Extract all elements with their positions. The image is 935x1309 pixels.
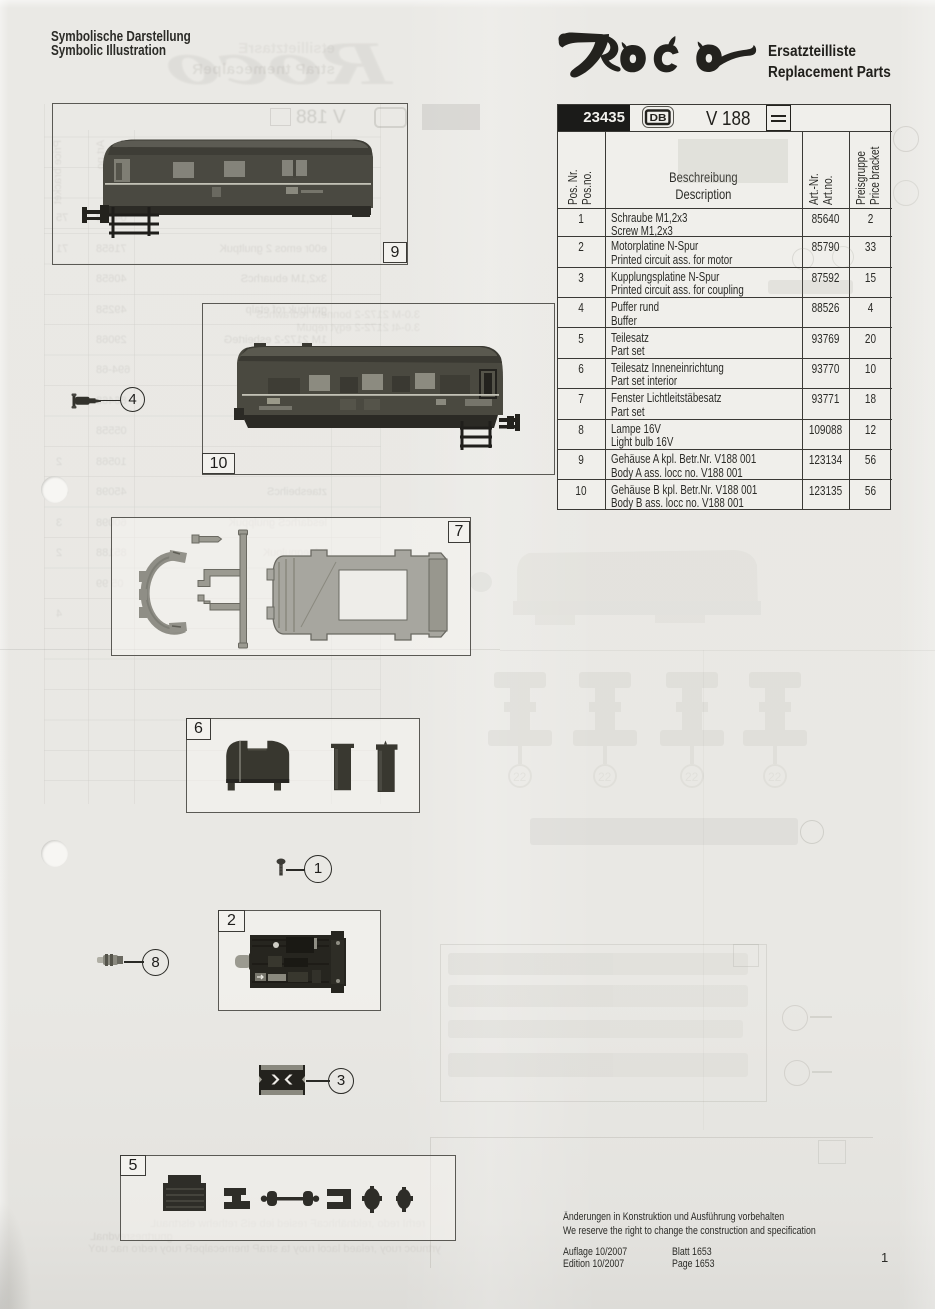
svg-text:DB: DB	[650, 113, 667, 124]
svg-text:22: 22	[513, 770, 527, 784]
